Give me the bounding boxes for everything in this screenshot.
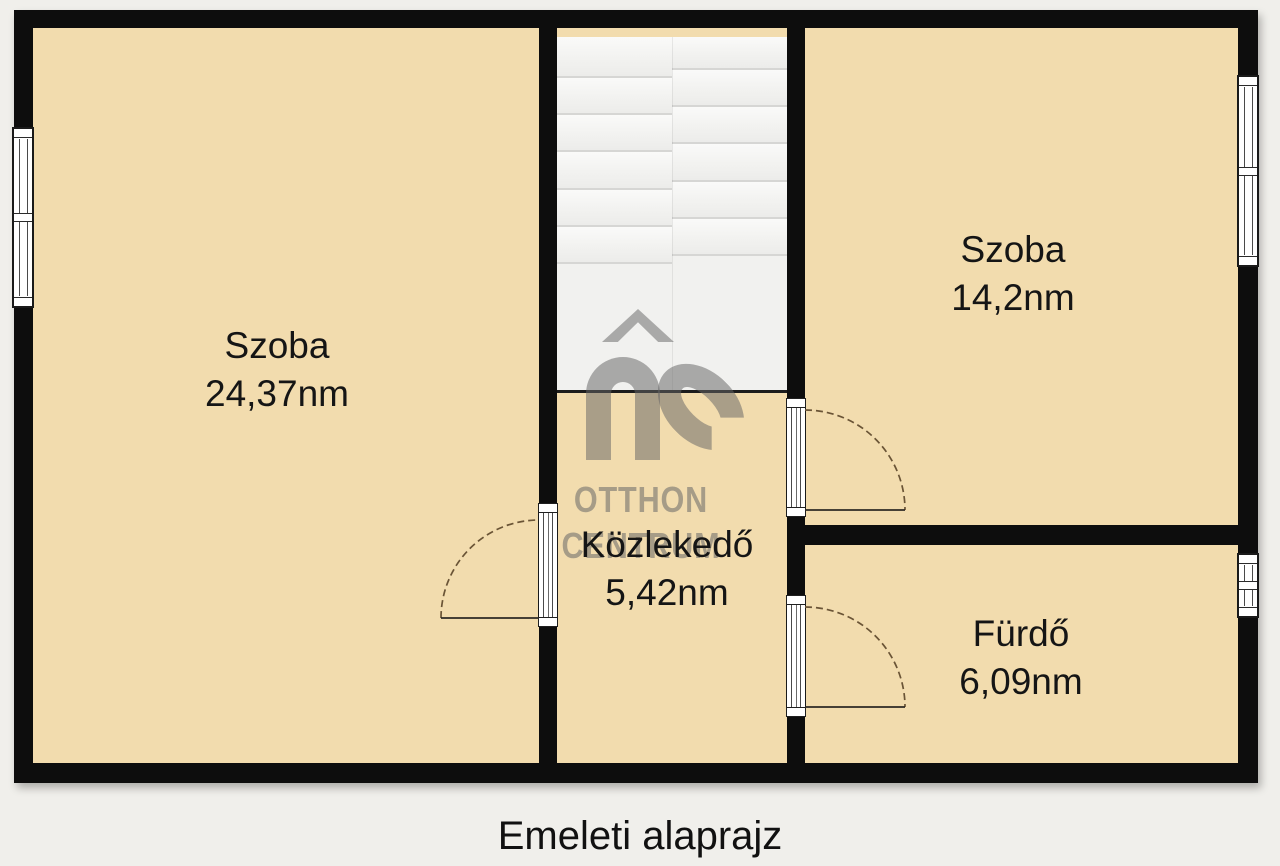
room-area: 6,09nm xyxy=(871,658,1171,706)
window-cap xyxy=(14,297,32,306)
window-divider xyxy=(1239,167,1257,176)
door-leaf-closed xyxy=(791,605,801,707)
stair-step xyxy=(557,78,672,115)
stair-step xyxy=(557,152,672,190)
room-name: Közlekedő xyxy=(517,521,817,569)
window-cap xyxy=(1239,607,1257,616)
room-label-szoba-right: Szoba 14,2nm xyxy=(863,226,1163,322)
stair-step xyxy=(557,190,672,227)
window-divider xyxy=(14,213,32,222)
room-name: Szoba xyxy=(863,226,1163,274)
room-area: 14,2nm xyxy=(863,274,1163,322)
stair-landing xyxy=(672,256,787,390)
stair-divider xyxy=(672,37,673,390)
room-label-furdo: Fürdő 6,09nm xyxy=(871,610,1171,706)
floor-plan-canvas: OC OTTHON CENTRUM Szoba 24,37nm Szoba 14… xyxy=(0,0,1280,866)
room-name: Fürdő xyxy=(871,610,1171,658)
wall-exterior-top xyxy=(14,10,1258,28)
window-symbol-szoba-right xyxy=(1237,75,1259,267)
stair-step xyxy=(672,219,787,256)
door-jamb xyxy=(538,617,558,627)
window-cap xyxy=(1239,256,1257,265)
window-cap xyxy=(1239,77,1257,86)
door-leaf-closed xyxy=(791,408,801,507)
stair-boundary-line xyxy=(557,390,787,393)
stair-landing xyxy=(557,264,672,390)
window-cap xyxy=(14,129,32,138)
staircase xyxy=(557,37,787,390)
stair-step xyxy=(557,37,672,78)
window-symbol-furdo xyxy=(1237,553,1259,618)
stair-step xyxy=(672,37,787,70)
window-divider xyxy=(1239,581,1257,590)
window-symbol-left xyxy=(12,127,34,308)
wall-interior-szoba-kozlekedo xyxy=(539,28,557,763)
stair-step xyxy=(672,70,787,107)
room-label-szoba-left: Szoba 24,37nm xyxy=(127,322,427,418)
stair-step xyxy=(557,115,672,152)
window-cap xyxy=(1239,555,1257,564)
stair-step xyxy=(557,227,672,264)
stair-flight-right xyxy=(672,37,787,390)
wall-exterior-left xyxy=(14,10,33,783)
stair-flight-left xyxy=(557,37,672,390)
room-name: Szoba xyxy=(127,322,427,370)
door-jamb xyxy=(786,507,806,517)
door-jamb xyxy=(538,503,558,513)
wall-interior-szoba-furdo xyxy=(805,525,1238,545)
room-area: 24,37nm xyxy=(127,370,427,418)
door-symbol-szoba-right xyxy=(786,398,806,517)
door-jamb xyxy=(786,398,806,408)
room-label-kozlekedo: Közlekedő 5,42nm xyxy=(517,521,817,617)
plan-caption: Emeleti alaprajz xyxy=(0,814,1280,859)
stair-step xyxy=(672,107,787,144)
room-area: 5,42nm xyxy=(517,569,817,617)
wall-exterior-bottom xyxy=(14,763,1258,783)
stair-step xyxy=(672,182,787,219)
door-jamb xyxy=(786,707,806,717)
stair-step xyxy=(672,144,787,182)
